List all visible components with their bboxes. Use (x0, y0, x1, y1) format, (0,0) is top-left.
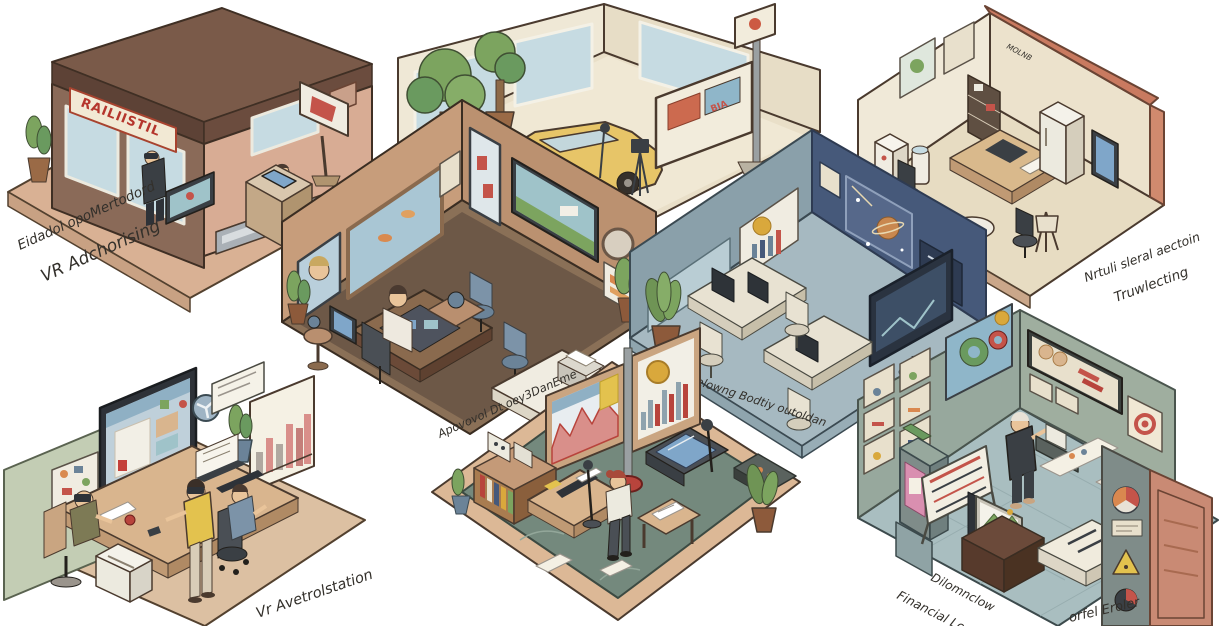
label-card (1112, 520, 1142, 536)
screen-pole (624, 348, 632, 478)
room-vr-workstation: Vr Avetrolstation (4, 362, 375, 626)
salmon-door (1150, 470, 1212, 626)
plant (26, 116, 51, 182)
fridge (1040, 102, 1084, 184)
illustration-canvas: RAILIISTIL (0, 0, 1224, 626)
tall-screen (470, 128, 500, 225)
round-mirror (603, 229, 633, 259)
